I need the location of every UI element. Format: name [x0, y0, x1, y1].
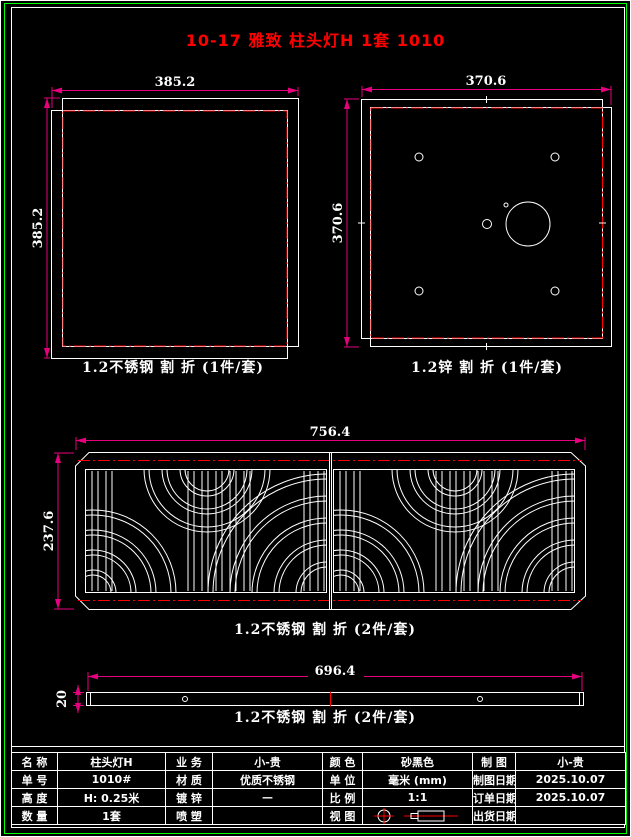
caption-trim-strip: 1.2不锈钢 割 折 (2件/套)	[234, 709, 416, 726]
cell-unit-label: 单 位	[323, 771, 363, 789]
cell-material-label: 材 质	[166, 771, 213, 789]
cell-quantity-value: 1套	[58, 807, 166, 825]
mounting-holes	[415, 153, 559, 295]
cell-unit-value: 毫米 (mm)	[363, 771, 473, 789]
title-block-table: 名 称 柱头灯H 业 务 小-贵 颜 色 砂黑色 制 图 小-贵 单 号 101…	[11, 752, 626, 825]
dim-top-plate-width: 385.2	[155, 75, 196, 90]
cell-ship-date-label: 出货日期	[473, 807, 516, 825]
cell-name-label: 名 称	[12, 753, 58, 771]
title-block-row-1: 名 称 柱头灯H 业 务 小-贵 颜 色 砂黑色 制 图 小-贵	[12, 753, 626, 771]
dim-lattice-panel-height: 237.6	[42, 511, 57, 552]
drawing-trim-strip: 696.4 20 1.2不锈钢 割 折 (2件/套)	[55, 664, 584, 726]
cell-order-date-value: 2025.10.07	[516, 789, 626, 807]
cad-sheet: 385.2 385.2 1.2不锈钢 割 折 (1件/套)	[0, 0, 631, 837]
dim-trim-strip-height: 20	[55, 690, 70, 708]
cell-view-label: 视 图	[323, 807, 363, 825]
dim-top-plate-height: 385.2	[31, 208, 46, 249]
dim-trim-strip-width: 696.4	[315, 664, 356, 679]
cell-draft-date-value: 2025.10.07	[516, 771, 626, 789]
cell-name-value: 柱头灯H	[58, 753, 166, 771]
cell-scale-label: 比 例	[323, 789, 363, 807]
dim-base-plate-height: 370.6	[331, 203, 346, 244]
title-block-row-4: 数 量 1套 喷 塑 视 图 出货日期	[12, 807, 626, 825]
cell-ship-date-value	[516, 807, 626, 825]
cell-order-date-label: 订单日期	[473, 789, 516, 807]
cell-order-no-value: 1010#	[58, 771, 166, 789]
cell-color-label: 颜 色	[323, 753, 363, 771]
title-block-row-3: 高 度 H: 0.25米 镀 锌 — 比 例 1:1 订单日期 2025.10.…	[12, 789, 626, 807]
cell-draftsman-value: 小-贵	[516, 753, 626, 771]
drawing-base-plate: 370.6 370.6 1.2锌 割 折 (1件/套)	[331, 74, 612, 376]
cell-sales-value: 小-贵	[213, 753, 323, 771]
cell-view-value	[363, 807, 473, 825]
cell-color-value: 砂黑色	[363, 753, 473, 771]
cell-height-value: H: 0.25米	[58, 789, 166, 807]
title-block-row-2: 单 号 1010# 材 质 优质不锈钢 单 位 毫米 (mm) 制图日期 202…	[12, 771, 626, 789]
drawing-top-plate: 385.2 385.2 1.2不锈钢 割 折 (1件/套)	[31, 75, 299, 376]
caption-top-plate: 1.2不锈钢 割 折 (1件/套)	[82, 359, 264, 376]
cell-galvanize-value: —	[213, 789, 323, 807]
dim-base-plate-width: 370.6	[466, 74, 507, 89]
cell-galvanize-label: 镀 锌	[166, 789, 213, 807]
cell-coating-value	[213, 807, 323, 825]
caption-base-plate: 1.2锌 割 折 (1件/套)	[411, 359, 563, 376]
dim-lattice-panel-width: 756.4	[310, 425, 351, 440]
sheet-title: 10-17 雅致 柱头灯H 1套 1010	[0, 27, 631, 51]
cell-height-label: 高 度	[12, 789, 58, 807]
cell-order-no-label: 单 号	[12, 771, 58, 789]
cell-scale-value: 1:1	[363, 789, 473, 807]
edge-center-ticks	[358, 96, 606, 350]
cell-coating-label: 喷 塑	[166, 807, 213, 825]
caption-lattice-panel: 1.2不锈钢 割 折 (2件/套)	[234, 621, 416, 638]
cell-material-value: 优质不锈钢	[213, 771, 323, 789]
first-angle-projection-icon	[370, 808, 466, 824]
cell-draftsman-label: 制 图	[473, 753, 516, 771]
cell-quantity-label: 数 量	[12, 807, 58, 825]
cell-draft-date-label: 制图日期	[473, 771, 516, 789]
cell-sales-label: 业 务	[166, 753, 213, 771]
cad-linework-canvas: 385.2 385.2 1.2不锈钢 割 折 (1件/套)	[0, 0, 631, 837]
